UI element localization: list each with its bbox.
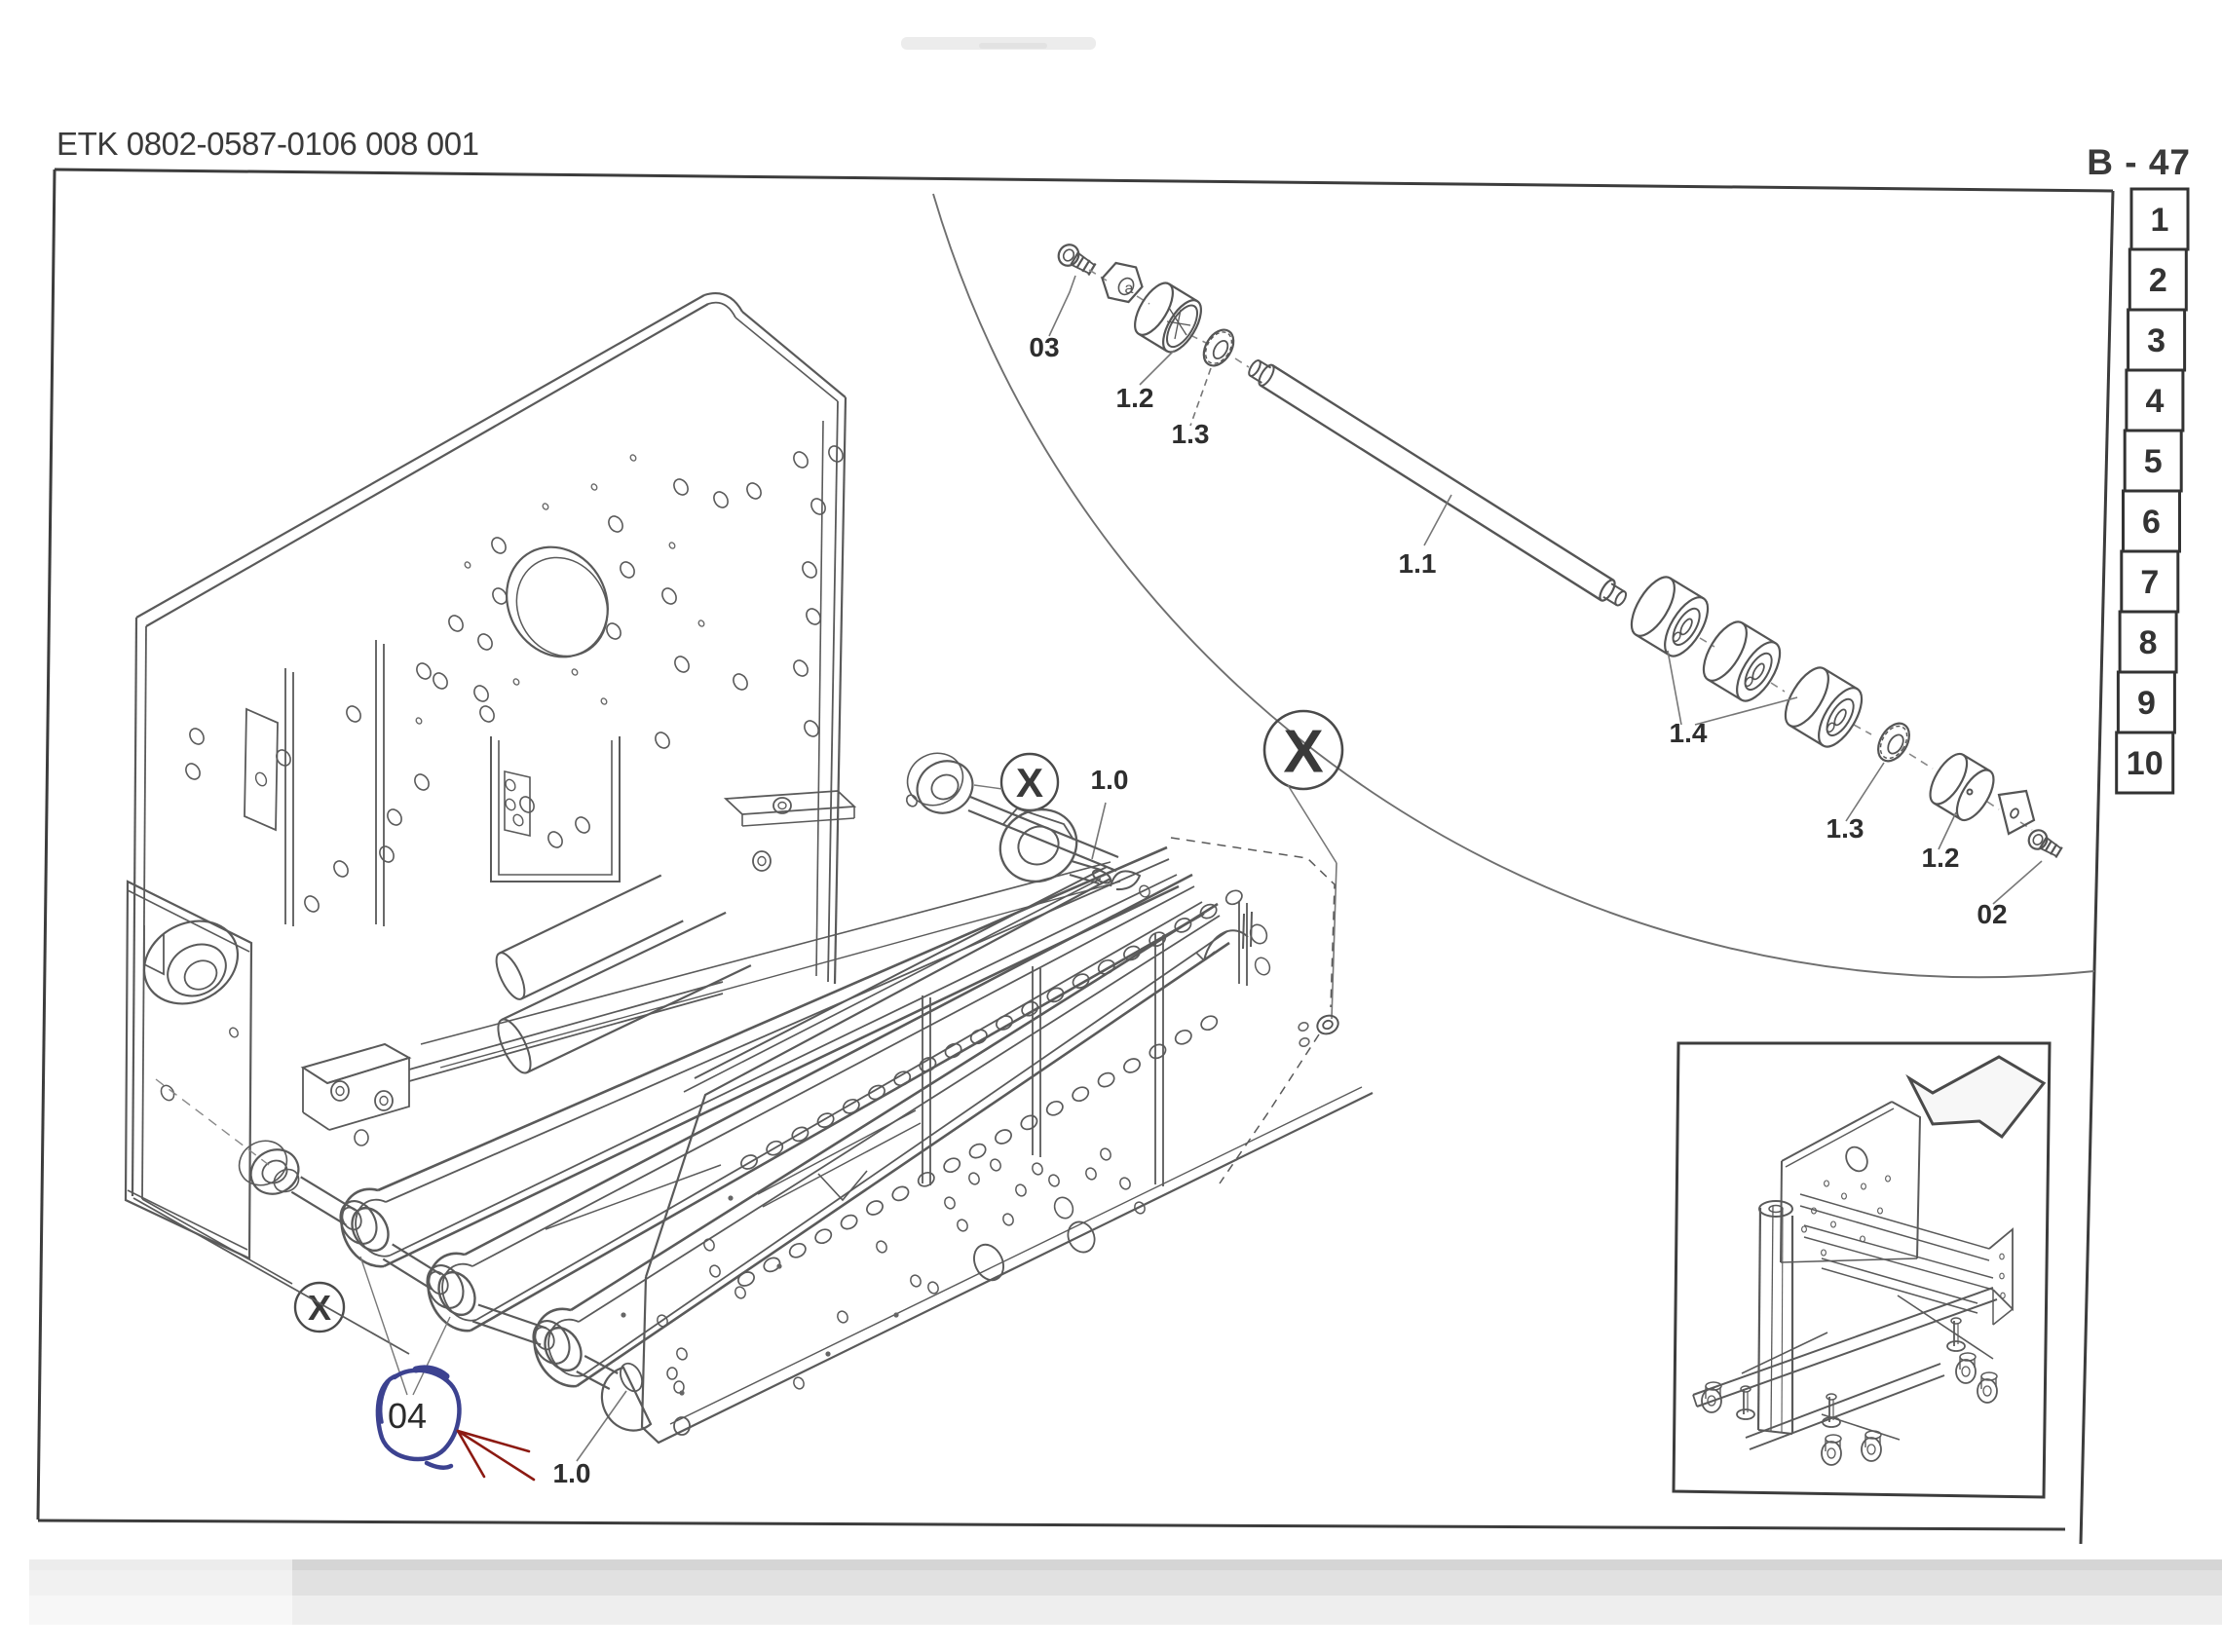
svg-text:04: 04 [388,1396,427,1436]
svg-text:a: a [1125,281,1134,297]
svg-text:1.0: 1.0 [553,1458,591,1488]
svg-text:X: X [1016,760,1043,806]
svg-text:7: 7 [2140,564,2159,601]
svg-text:B - 47: B - 47 [2087,142,2191,182]
svg-text:1.2: 1.2 [1922,843,1960,873]
svg-text:8: 8 [2139,624,2158,661]
svg-text:ETK 0802-0587-0106 008 001: ETK 0802-0587-0106 008 001 [56,126,479,162]
svg-text:3: 3 [2147,322,2166,359]
svg-text:9: 9 [2137,685,2156,722]
svg-text:5: 5 [2144,443,2163,480]
svg-text:1.1: 1.1 [1399,548,1437,579]
svg-text:6: 6 [2142,504,2161,541]
svg-text:1.0: 1.0 [1091,765,1129,795]
svg-text:4: 4 [2145,383,2164,420]
svg-text:1.3: 1.3 [1172,419,1210,449]
svg-text:1.2: 1.2 [1116,383,1154,413]
svg-text:02: 02 [1977,899,2007,929]
svg-text:X: X [1283,718,1323,785]
svg-text:1: 1 [2151,202,2169,239]
svg-text:2: 2 [2149,262,2167,299]
svg-text:1.3: 1.3 [1827,813,1864,844]
svg-text:10: 10 [2127,745,2164,782]
svg-text:03: 03 [1029,332,1059,362]
